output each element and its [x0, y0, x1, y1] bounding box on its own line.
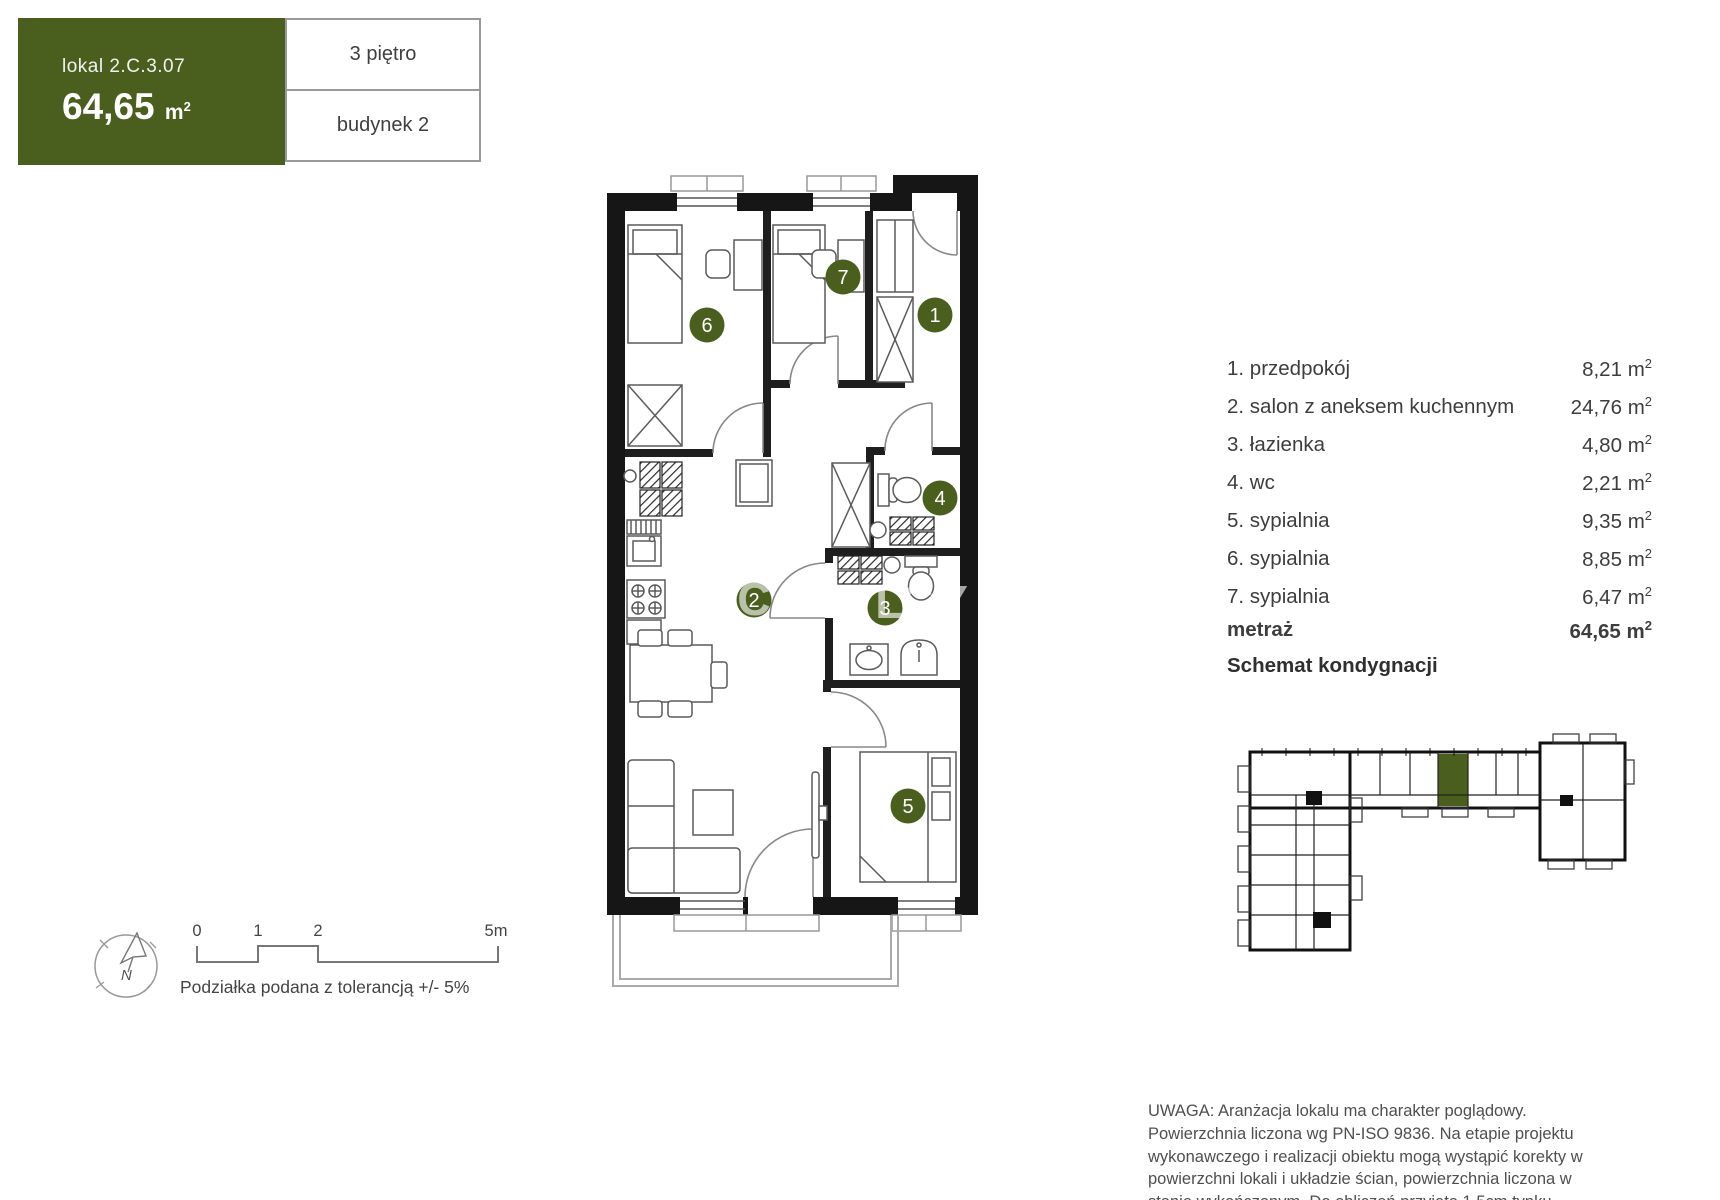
- floor-plan: 1 2 3 4 5 6 7: [590, 160, 1000, 1010]
- room-row-4: 4. wc2,21 m2: [1227, 464, 1652, 502]
- room-row-5: 5. sypialnia9,35 m2: [1227, 502, 1652, 540]
- svg-text:2: 2: [748, 590, 759, 612]
- bath-bidet-icon: [901, 640, 937, 675]
- floorplan-card: lokal 2.C.3.07 64,65 m2 3 piętro budynek…: [0, 0, 1720, 1200]
- room-badge-6: 6: [690, 308, 725, 343]
- room-badge-2: 2: [737, 583, 772, 618]
- room-badge-5: 5: [891, 789, 926, 824]
- building-schematic: [1140, 705, 1640, 970]
- svg-text:7: 7: [837, 267, 848, 289]
- building-box: budynek 2: [285, 89, 481, 162]
- svg-text:2: 2: [313, 922, 322, 940]
- room-row-2: 2. salon z aneksem kuchennym24,76 m2: [1227, 388, 1652, 426]
- svg-text:0: 0: [192, 922, 201, 940]
- compass-icon: N: [95, 933, 157, 997]
- bath-shaft-icon: [838, 556, 900, 584]
- scale-bar: 0 1 2 5m: [192, 922, 507, 962]
- highlighted-unit: [1438, 754, 1468, 806]
- svg-text:4: 4: [934, 488, 945, 510]
- room-badge-7: 7: [826, 260, 861, 295]
- bath-toilet-icon: [905, 556, 937, 600]
- schematic-title: Schemat kondygnacji: [1227, 654, 1438, 678]
- room6-desk-icon: [706, 240, 762, 290]
- room-badge-1: 1: [918, 298, 953, 333]
- room6-wardrobe-icon: [628, 385, 682, 446]
- room-row-1: 1. przedpokój8,21 m2: [1227, 350, 1652, 388]
- svg-text:1: 1: [929, 305, 940, 327]
- room-row-6: 6. sypialnia8,85 m2: [1227, 540, 1652, 578]
- kitchen-stove-icon: [627, 580, 665, 618]
- wc-toilet-icon: [878, 474, 921, 506]
- kitchen-shaft-icon: [624, 462, 682, 516]
- svg-text:5: 5: [902, 796, 913, 818]
- room-row-3: 3. łazienka4,80 m2: [1227, 426, 1652, 464]
- svg-text:6: 6: [701, 315, 712, 337]
- disclaimer-text: UWAGA: Aranżacja lokalu ma charakter pog…: [1148, 1100, 1610, 1200]
- unit-number-label: lokal 2.C.3.07: [62, 56, 285, 78]
- room6-bed-icon: [628, 225, 682, 343]
- compass-scale: N 0 1 2 5m: [80, 915, 510, 1025]
- svg-text:1: 1: [253, 922, 262, 940]
- kitchen-sink-icon: [627, 536, 661, 566]
- coffee-table-icon: [693, 790, 733, 835]
- room7-bed-icon: [773, 225, 825, 343]
- svg-text:5m: 5m: [485, 922, 508, 940]
- floor-box: 3 piętro: [285, 18, 481, 91]
- hall-wardrobe-icon: [877, 297, 913, 382]
- total-value: 64,65 m2: [1570, 618, 1652, 644]
- bath-sink-icon: [850, 644, 888, 675]
- wc-shaft-icon: [870, 517, 934, 545]
- scale-note: Podziałka podana z tolerancją +/- 5%: [180, 977, 469, 998]
- room-row-7: 7. sypialnia6,47 m2: [1227, 578, 1652, 616]
- corridor-wardrobe-icon: [832, 463, 870, 547]
- kitchen-counter-icon: [736, 460, 772, 506]
- room-badge-4: 4: [923, 481, 958, 516]
- total-area-row: metraż 64,65 m2: [1227, 618, 1652, 644]
- svg-text:3: 3: [879, 598, 890, 620]
- dining-table-icon: [630, 630, 727, 717]
- kitchen-fridge-icon: [627, 520, 661, 534]
- room-list: 1. przedpokój8,21 m2 2. salon z aneksem …: [1227, 350, 1652, 616]
- room-badge-3: 3: [868, 591, 903, 626]
- total-label: metraż: [1227, 618, 1293, 644]
- unit-area-label: 64,65 m2: [62, 86, 285, 128]
- svg-text:N: N: [121, 967, 132, 984]
- unit-header: lokal 2.C.3.07 64,65 m2: [18, 18, 285, 165]
- hall-cabinet-icon: [877, 220, 913, 292]
